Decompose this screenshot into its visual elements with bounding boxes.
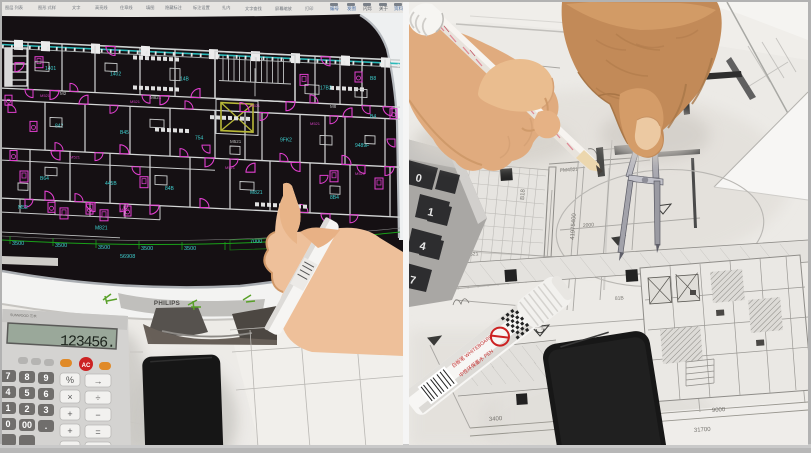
svg-text:31700: 31700 <box>694 427 712 434</box>
svg-text:扎内: 扎内 <box>222 4 230 11</box>
svg-text:图层 列表: 图层 列表 <box>5 4 24 11</box>
svg-text:屏幕缩放: 屏幕缩放 <box>275 5 293 12</box>
svg-text:3500: 3500 <box>12 241 24 247</box>
svg-text:5: 5 <box>24 388 29 398</box>
svg-text:3500: 3500 <box>141 246 153 252</box>
svg-text:6: 6 <box>43 389 48 399</box>
svg-text:8B4: 8B4 <box>330 195 339 201</box>
svg-text:81B: 81B <box>615 295 625 302</box>
svg-text:M521: M521 <box>310 121 321 126</box>
svg-text:打印: 打印 <box>305 5 313 12</box>
svg-text:8: 8 <box>24 372 29 382</box>
svg-text:M521: M521 <box>355 171 366 176</box>
svg-text:9000: 9000 <box>712 407 726 414</box>
svg-text:M521: M521 <box>230 139 242 144</box>
svg-text:14B: 14B <box>180 77 190 83</box>
svg-text:M521: M521 <box>225 165 236 170</box>
svg-text:4: 4 <box>5 387 10 397</box>
svg-text:图形 式样: 图形 式样 <box>38 4 56 11</box>
svg-text:−: − <box>95 410 100 420</box>
svg-text:B64: B64 <box>40 176 49 182</box>
svg-text:9FK2: 9FK2 <box>280 137 292 143</box>
svg-text:3500: 3500 <box>98 245 110 251</box>
svg-text:754: 754 <box>195 135 204 141</box>
svg-text:9: 9 <box>43 373 48 383</box>
svg-text:%: % <box>66 375 74 385</box>
svg-text:高亮线: 高亮线 <box>95 4 108 11</box>
svg-text:÷: ÷ <box>96 393 101 403</box>
svg-text:编号: 编号 <box>330 5 339 12</box>
svg-text:M521: M521 <box>70 154 81 159</box>
svg-text:+: + <box>67 426 72 436</box>
svg-text:445B: 445B <box>105 181 117 187</box>
svg-text:文字: 文字 <box>72 4 80 11</box>
svg-text:.: . <box>45 421 48 431</box>
svg-text:1: 1 <box>5 403 10 413</box>
svg-text:填图: 填图 <box>146 4 154 11</box>
svg-text:123456.: 123456. <box>60 333 115 352</box>
svg-text:M8: M8 <box>330 104 337 109</box>
svg-text:PHILIPS: PHILIPS <box>154 300 180 307</box>
svg-text:AC: AC <box>82 363 91 369</box>
svg-text:住章线: 住章线 <box>120 4 133 11</box>
svg-text:M521: M521 <box>250 103 261 108</box>
svg-text:B8: B8 <box>370 76 376 82</box>
svg-text:B4: B4 <box>370 114 376 120</box>
svg-text:隐藏标注: 隐藏标注 <box>165 4 183 11</box>
svg-text:84B: 84B <box>165 186 175 192</box>
svg-text:M821: M821 <box>95 226 108 232</box>
svg-text:×: × <box>67 392 72 402</box>
svg-text:标注设置: 标注设置 <box>193 4 210 11</box>
svg-text:关于: 关于 <box>379 5 388 12</box>
svg-text:2: 2 <box>24 404 29 414</box>
svg-text:1402: 1402 <box>110 71 121 77</box>
svg-text:文字查找: 文字查找 <box>245 5 263 12</box>
svg-text:0: 0 <box>5 419 10 429</box>
svg-text:3500: 3500 <box>55 243 67 249</box>
svg-text:3500: 3500 <box>184 246 196 252</box>
svg-text:发图: 发图 <box>347 5 356 12</box>
svg-text:7: 7 <box>5 371 10 381</box>
svg-text:7000: 7000 <box>250 239 262 245</box>
svg-text:+: + <box>67 409 72 419</box>
svg-text:00: 00 <box>22 420 32 430</box>
svg-text:=: = <box>95 427 100 437</box>
svg-text:56908: 56908 <box>120 254 135 260</box>
svg-text:3: 3 <box>43 405 48 415</box>
svg-text:M52: M52 <box>18 205 28 211</box>
svg-text:B18: B18 <box>520 188 527 200</box>
svg-text:→: → <box>94 376 103 386</box>
svg-text:M821: M821 <box>250 190 263 196</box>
svg-text:资料: 资料 <box>394 5 403 12</box>
svg-text:3400: 3400 <box>489 416 503 423</box>
svg-text:M521: M521 <box>130 99 141 104</box>
svg-text:M521: M521 <box>120 207 131 212</box>
svg-text:M521: M521 <box>40 93 51 98</box>
svg-text:B45: B45 <box>120 130 129 136</box>
svg-text:17B2: 17B2 <box>320 85 332 91</box>
svg-text:M2: M2 <box>60 91 67 96</box>
